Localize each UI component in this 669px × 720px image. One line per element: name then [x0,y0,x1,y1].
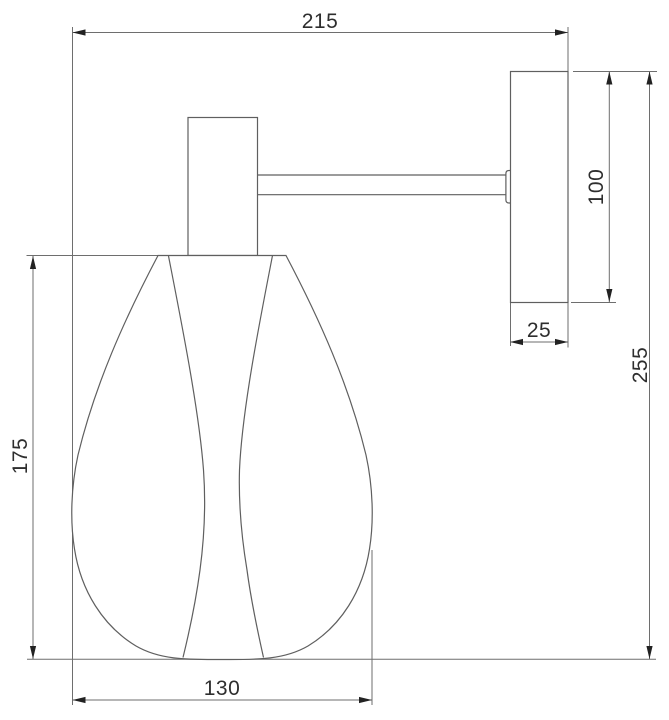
arrowhead-left [73,697,86,703]
arrowhead-up [646,72,652,85]
dim-label-projection-width: 215 [302,10,339,33]
backplate [511,72,569,303]
lamp-stem [188,118,258,256]
arrowhead-up [606,72,612,85]
arrowhead-right [555,29,568,35]
arrowhead-right [555,339,568,345]
arrowhead-right [359,697,372,703]
lamp [72,72,568,660]
dim-label-backplate-height: 100 [585,169,608,206]
dim-label-shade-width: 130 [204,677,241,700]
arrowhead-down [606,289,612,302]
arrowhead-left [510,339,523,345]
dim-label-backplate-width: 25 [527,319,551,342]
arrowhead-up [30,256,36,269]
dim-label-shade-height: 175 [9,438,32,475]
arrowhead-left [73,29,86,35]
arrowhead-down [646,646,652,659]
dim-label-overall-height: 255 [629,347,652,384]
glass-shade [72,256,372,660]
drawing-svg: 215 100 25 255 175 130 [0,0,669,720]
arrowhead-down [30,646,36,659]
technical-drawing: 215 100 25 255 175 130 [0,0,669,720]
